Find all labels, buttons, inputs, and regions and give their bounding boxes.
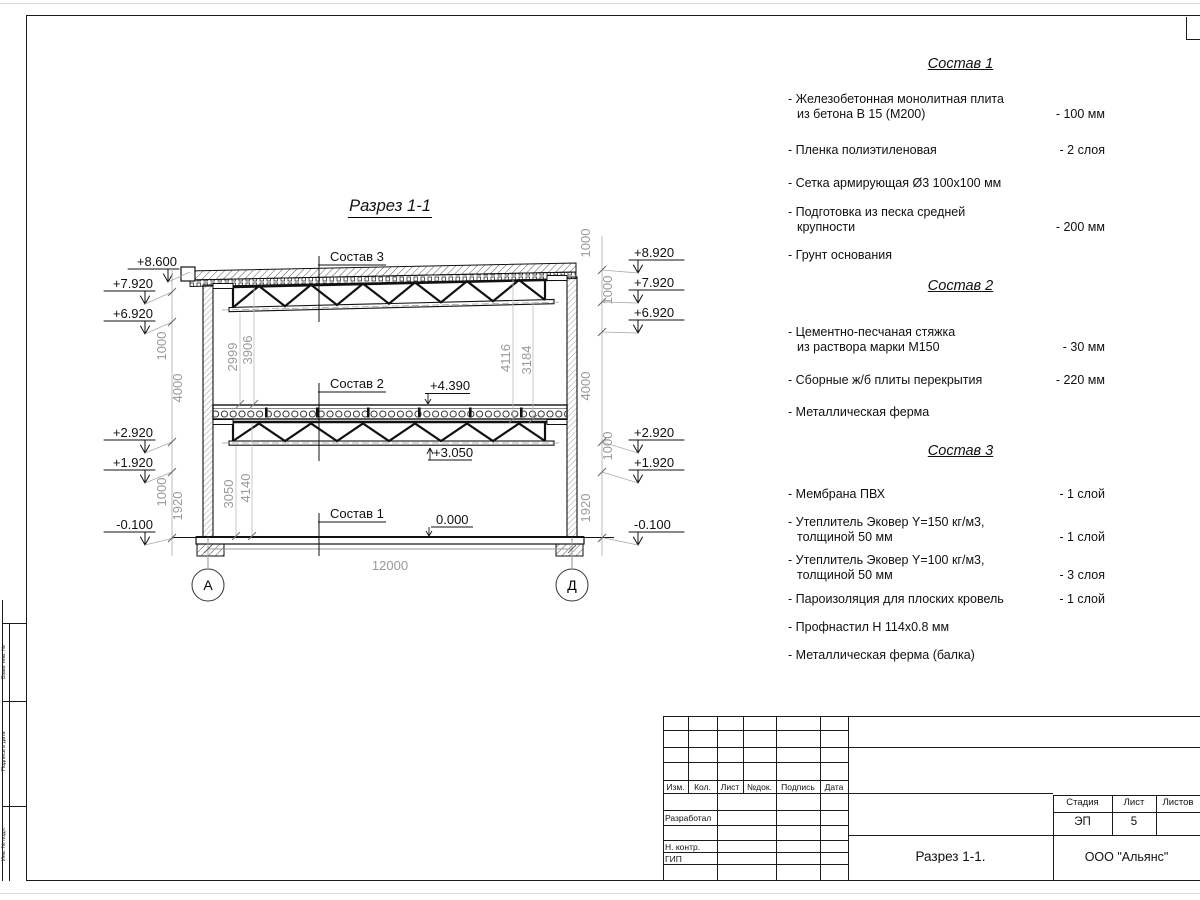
list-item-name: - Утеплитель Эковер Y=100 кг/м3, толщино…	[788, 553, 984, 583]
tb-col-data: Дата	[820, 781, 848, 793]
tb-role-ncontrol: Н. контр.	[665, 841, 717, 853]
tb-sheet-value: 5	[1112, 816, 1156, 828]
format-corner-box	[1186, 17, 1200, 40]
svg-text:3050: 3050	[221, 480, 236, 509]
dim-span: 12000	[372, 558, 408, 573]
list-item-name: - Сборные ж/б плиты перекрытия	[788, 373, 982, 388]
floor-truss	[233, 424, 545, 442]
svg-text:1920: 1920	[170, 492, 185, 521]
list-item-name: - Профнастил Н 114х0.8 мм	[788, 620, 949, 635]
floor1-assembly	[172, 537, 614, 556]
tb-col-ndok: №док.	[743, 781, 776, 793]
list-item-name: - Грунт основания	[788, 248, 892, 263]
svg-text:-0.100: -0.100	[116, 517, 153, 532]
section-drawing: А Д 12000 Состав 3 Состав 2 Состав 1 +4.…	[80, 190, 700, 620]
svg-text:+8.920: +8.920	[634, 245, 674, 260]
level-truss2: +3.050	[427, 445, 473, 460]
svg-text:+3.050: +3.050	[433, 445, 473, 460]
axis-letter: А	[203, 577, 213, 593]
dim-chain-right: 1000 1000 4000 1000 1920	[578, 229, 615, 556]
tb-doc-title: Разрез 1-1.	[848, 851, 1053, 863]
tb-role-developed: Разработал	[665, 812, 717, 824]
list-item-name: - Сетка армирующая Ø3 100х100 мм	[788, 176, 1001, 191]
svg-text:+8.600: +8.600	[137, 254, 177, 269]
tb-col-izm: Изм.	[663, 781, 688, 793]
list-title: Состав 2	[802, 278, 1119, 294]
roof-assembly	[181, 263, 576, 312]
svg-text:1000: 1000	[154, 332, 169, 361]
list-item-value: - 100 мм	[1056, 107, 1105, 122]
svg-text:3906: 3906	[240, 336, 255, 365]
list-item-name: - Металлическая ферма	[788, 405, 929, 420]
span-dimension: 12000	[204, 541, 576, 573]
wall-left	[203, 285, 213, 537]
svg-text:4116: 4116	[498, 344, 513, 372]
svg-text:+2.920: +2.920	[113, 425, 153, 440]
list-item-value: - 200 мм	[1056, 220, 1105, 235]
tb-sheet-label: Лист	[1112, 797, 1156, 809]
list-title: Состав 1	[802, 56, 1119, 72]
list-item-value: - 220 мм	[1056, 373, 1105, 388]
list-item-name: - Цементно-песчаная стяжка из раствора м…	[788, 325, 955, 355]
elevation-marks-right: +8.920 +7.920 +6.920 +2.920 +1.920 -0.10…	[629, 245, 684, 545]
svg-text:3184: 3184	[519, 346, 534, 375]
list-item-name: - Мембрана ПВХ	[788, 487, 885, 502]
svg-text:+7.920: +7.920	[634, 275, 674, 290]
svg-text:4140: 4140	[238, 474, 253, 503]
page-bottom-edge	[0, 893, 1200, 894]
list-item-value: - 3 слоя	[1060, 568, 1105, 583]
floor2-assembly	[213, 405, 567, 445]
list-item-name: - Железобетонная монолитная плита из бет…	[788, 92, 1004, 122]
list-item-value: - 30 мм	[1063, 340, 1105, 355]
strip-label: Инв. № подл.	[1, 826, 7, 862]
list-item-name: - Пленка полиэтиленовая	[788, 143, 937, 158]
list-item-value: - 1 слой	[1059, 487, 1105, 502]
svg-text:+6.920: +6.920	[634, 305, 674, 320]
list-item-value: - 1 слой	[1059, 530, 1105, 545]
svg-text:0.000: 0.000	[436, 512, 469, 527]
list-item-name: - Утеплитель Эковер Y=150 кг/м3, толщино…	[788, 515, 984, 545]
tb-role-gip: ГИП	[665, 853, 717, 865]
tb-company: ООО "Альянс"	[1053, 851, 1200, 863]
svg-text:Состав 2: Состав 2	[330, 376, 384, 391]
list-item-name: - Металлическая ферма (балка)	[788, 648, 975, 663]
strip-label: Взам. инв. №	[1, 644, 7, 680]
svg-text:1000: 1000	[600, 276, 615, 305]
svg-text:1000: 1000	[578, 229, 593, 258]
svg-text:+4.390: +4.390	[430, 378, 470, 393]
list-item-name: - Подготовка из песка средней крупности	[788, 205, 965, 235]
dim-chain-left: 1000 4000 1000 1920	[154, 268, 185, 556]
level-floor2: +4.390	[425, 378, 470, 404]
list-title: Состав 3	[802, 443, 1119, 459]
page-top-edge	[0, 3, 1200, 4]
leader-sostav1: Состав 1	[318, 506, 386, 556]
tb-stage-label: Стадия	[1053, 797, 1112, 809]
svg-text:+6.920: +6.920	[113, 306, 153, 321]
wall-right	[567, 277, 577, 537]
list-item-name: - Пароизоляция для плоских кровель	[788, 592, 1004, 607]
svg-text:4000: 4000	[170, 374, 185, 403]
svg-text:1920: 1920	[578, 494, 593, 523]
axis-letter: Д	[567, 577, 577, 593]
list-item-value: - 1 слой	[1059, 592, 1105, 607]
tb-col-kol: Кол.	[688, 781, 717, 793]
svg-text:-0.100: -0.100	[634, 517, 671, 532]
svg-text:1000: 1000	[154, 478, 169, 507]
strip-label: Подпись и дата	[1, 735, 7, 771]
svg-text:+1.920: +1.920	[113, 455, 153, 470]
svg-text:+2.920: +2.920	[634, 425, 674, 440]
level-floor1: 0.000	[426, 512, 473, 536]
tb-sheets-label: Листов	[1156, 797, 1200, 809]
svg-text:2999: 2999	[225, 343, 240, 372]
svg-text:Состав 3: Состав 3	[330, 249, 384, 264]
svg-text:1000: 1000	[600, 432, 615, 461]
svg-text:+1.920: +1.920	[634, 455, 674, 470]
svg-text:Состав 1: Состав 1	[330, 506, 384, 521]
tb-stage-value: ЭП	[1053, 816, 1112, 828]
tb-col-podpis: Подпись	[776, 781, 820, 793]
svg-text:4000: 4000	[578, 372, 593, 401]
list-item-value: - 2 слоя	[1060, 143, 1105, 158]
tb-col-list: Лист	[717, 781, 743, 793]
svg-text:+7.920: +7.920	[113, 276, 153, 291]
